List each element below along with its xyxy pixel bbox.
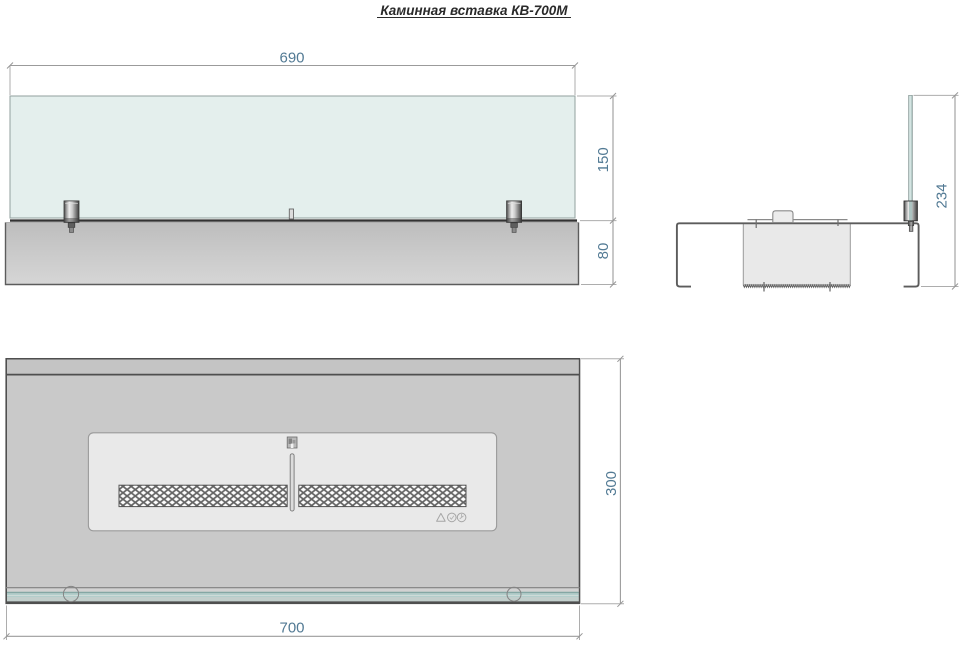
svg-text:80: 80 bbox=[595, 243, 612, 260]
svg-text:690: 690 bbox=[279, 50, 304, 67]
svg-text:300: 300 bbox=[603, 471, 620, 496]
svg-text:Каминная вставка КВ-700М: Каминная вставка КВ-700М bbox=[380, 3, 568, 18]
svg-text:234: 234 bbox=[934, 183, 951, 208]
svg-text:700: 700 bbox=[279, 620, 304, 637]
svg-text:150: 150 bbox=[595, 147, 612, 172]
